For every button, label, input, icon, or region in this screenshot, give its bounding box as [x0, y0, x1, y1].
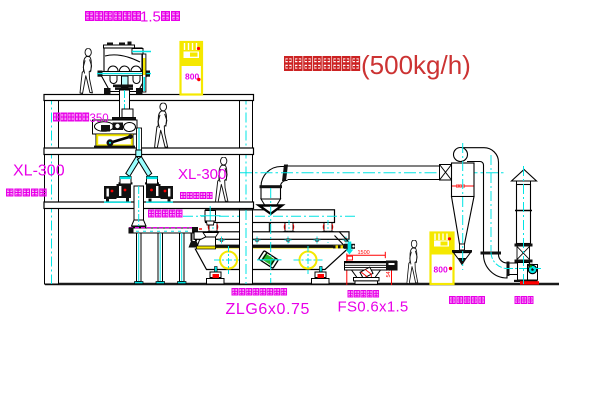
- svg-text:1.5: 1.5: [140, 9, 161, 26]
- svg-text:XL-300: XL-300: [13, 163, 65, 180]
- svg-text:(500kg/h): (500kg/h): [361, 50, 471, 80]
- svg-text:350: 350: [90, 113, 109, 125]
- svg-text:ZLG6x0.75: ZLG6x0.75: [226, 301, 311, 318]
- svg-text:1500: 1500: [358, 250, 370, 256]
- svg-text:800: 800: [456, 184, 465, 190]
- svg-text:800: 800: [434, 265, 448, 275]
- svg-text:XL-300: XL-300: [178, 166, 226, 183]
- svg-text:FS0.6x1.5: FS0.6x1.5: [338, 299, 409, 316]
